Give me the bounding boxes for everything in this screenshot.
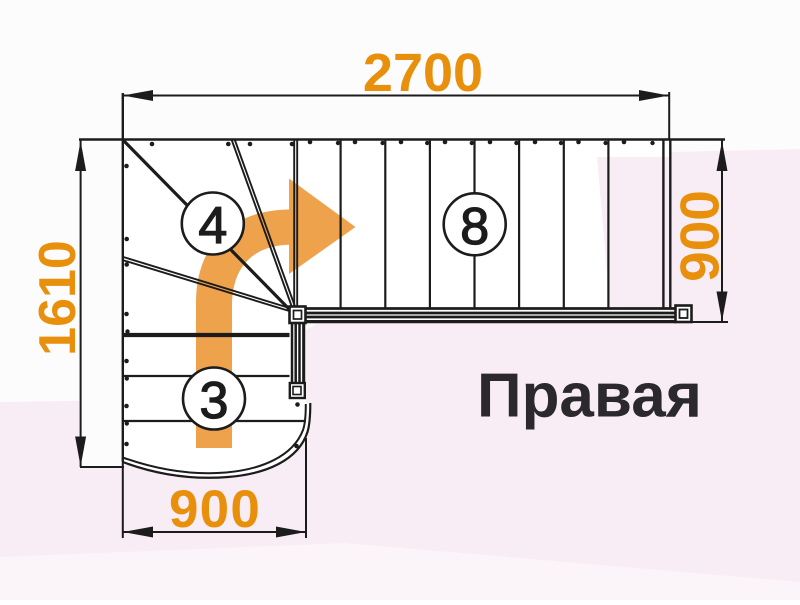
svg-text:4: 4 <box>198 197 227 255</box>
svg-text:900: 900 <box>169 480 261 539</box>
svg-text:2700: 2700 <box>363 43 483 103</box>
svg-text:3: 3 <box>200 372 229 430</box>
svg-text:Правая: Правая <box>477 362 702 431</box>
svg-text:1610: 1610 <box>29 240 87 356</box>
svg-text:8: 8 <box>460 198 489 256</box>
svg-text:900: 900 <box>669 190 731 282</box>
